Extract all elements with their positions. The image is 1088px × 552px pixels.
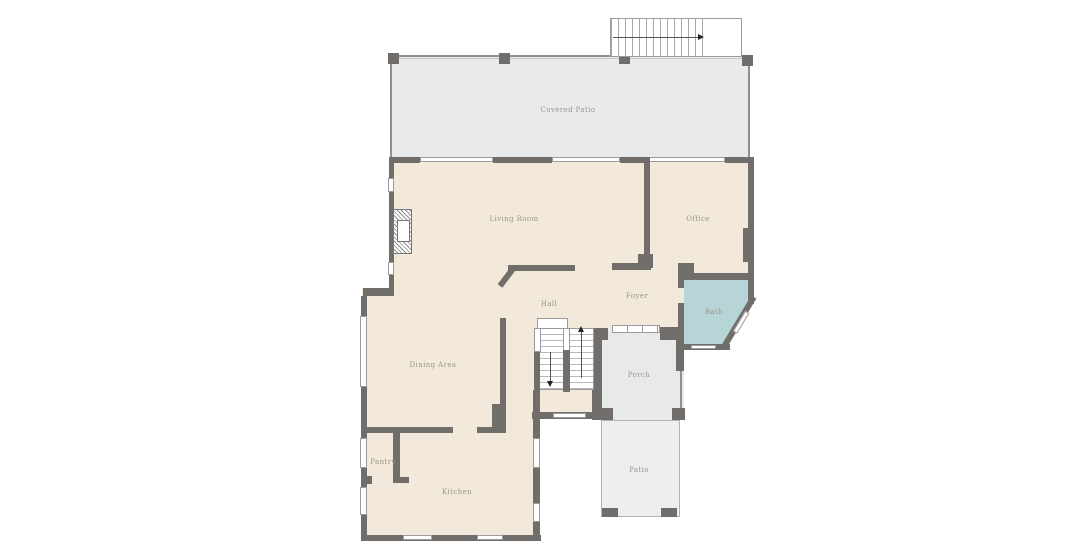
wall xyxy=(638,254,653,268)
patio-rail-left xyxy=(390,56,392,157)
fireplace-firebox xyxy=(397,220,410,242)
window xyxy=(477,535,503,540)
room-label-dining-area: Dining Area xyxy=(410,361,457,369)
stairs-up-arrow-icon xyxy=(578,326,584,332)
stairs-down-arrow-icon xyxy=(547,381,553,387)
window xyxy=(420,157,493,162)
window xyxy=(360,487,367,515)
room-label-foyer: Foyer xyxy=(626,292,648,300)
window xyxy=(403,535,432,540)
wall xyxy=(361,535,541,541)
wall xyxy=(592,328,608,340)
patio-post xyxy=(388,53,399,64)
window xyxy=(388,178,394,192)
patio-post xyxy=(661,508,677,517)
window xyxy=(360,438,367,468)
window xyxy=(553,413,586,418)
window xyxy=(691,345,716,349)
patio-rail-top-inner xyxy=(390,58,750,59)
window xyxy=(533,438,540,468)
wall xyxy=(393,477,409,483)
wall xyxy=(676,333,684,371)
stairs-right-arrow-icon xyxy=(698,34,704,40)
wall xyxy=(500,318,506,407)
room-label-hall: Hall xyxy=(541,300,557,308)
window xyxy=(552,157,620,162)
window xyxy=(647,157,725,162)
stair-rail xyxy=(534,328,541,352)
wall xyxy=(492,404,506,430)
porch-post xyxy=(672,408,685,420)
room-label-living-room: Living Room xyxy=(489,215,538,223)
wall xyxy=(748,157,754,304)
window xyxy=(533,503,540,522)
room-label-bath: Bath xyxy=(705,308,723,316)
room-label-office: Office xyxy=(686,215,710,223)
stair-rail xyxy=(563,328,570,352)
wall xyxy=(389,157,394,178)
wall xyxy=(644,157,650,257)
wall xyxy=(363,288,393,296)
room-label-porch: Porch xyxy=(628,371,650,379)
floor-plan: Covered Patio Living Room Office Hall Fo… xyxy=(0,0,1088,552)
dining-kitchen-floor xyxy=(362,288,540,540)
stair-rail xyxy=(534,352,540,392)
wall xyxy=(361,427,453,433)
stairs-down-line xyxy=(550,352,551,381)
wall xyxy=(393,433,400,479)
wall xyxy=(493,157,552,163)
room-label-covered-patio: Covered Patio xyxy=(541,106,596,114)
wall xyxy=(508,265,575,271)
stair-divider xyxy=(563,350,570,392)
wall xyxy=(361,476,372,484)
window xyxy=(388,262,394,275)
room-label-patio: Patio xyxy=(629,466,649,474)
room-label-pantry: Pantry xyxy=(370,458,396,466)
patio-post xyxy=(602,508,618,517)
window xyxy=(360,316,367,387)
room-label-kitchen: Kitchen xyxy=(442,488,472,496)
wall xyxy=(743,228,748,262)
wall xyxy=(390,157,420,163)
wall xyxy=(678,275,684,288)
front-door xyxy=(612,325,660,333)
patio-post xyxy=(499,53,510,64)
patio-post xyxy=(742,55,753,66)
porch-rail-right xyxy=(680,371,682,409)
patio-rail-right xyxy=(748,56,750,157)
wall xyxy=(620,157,647,163)
exterior-stairs-arrow-line xyxy=(613,37,698,38)
wall xyxy=(678,263,694,275)
stairs-up-line xyxy=(581,332,582,378)
